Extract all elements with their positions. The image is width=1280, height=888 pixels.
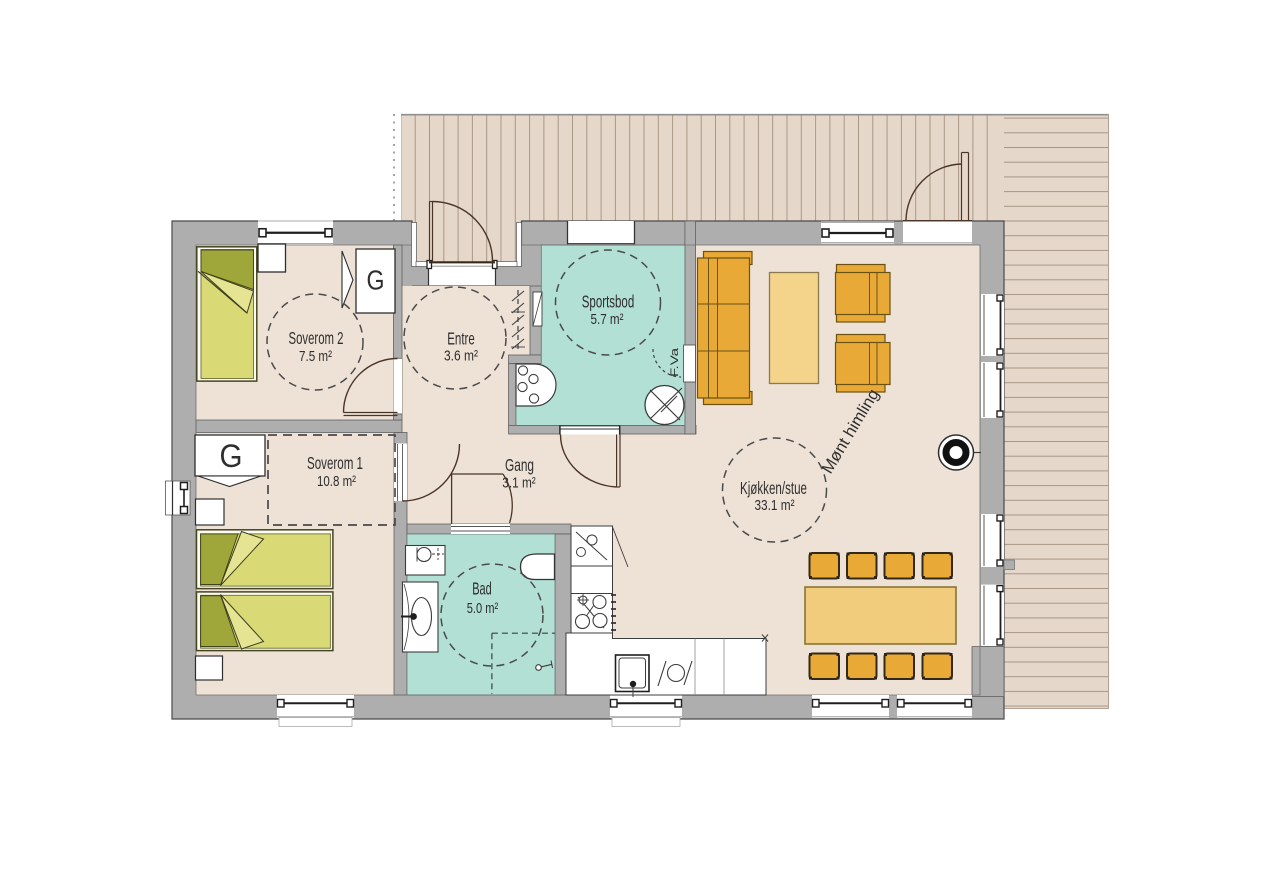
svg-text:5.0 m²: 5.0 m² <box>467 600 499 617</box>
svg-text:Sportsbod: Sportsbod <box>582 292 635 312</box>
svg-text:Soverom 2: Soverom 2 <box>289 328 344 348</box>
svg-text:3.6 m²: 3.6 m² <box>444 348 478 365</box>
svg-text:Soverom 1: Soverom 1 <box>307 453 363 473</box>
svg-text:G: G <box>367 265 385 296</box>
svg-text:33.1 m²: 33.1 m² <box>755 497 795 514</box>
svg-text:5.7 m²: 5.7 m² <box>591 311 624 328</box>
svg-text:7.5 m²: 7.5 m² <box>299 348 332 365</box>
svg-text:Bad: Bad <box>472 579 492 599</box>
svg-text:Gang: Gang <box>505 455 534 475</box>
svg-text:Entre: Entre <box>447 329 475 349</box>
svg-text:G: G <box>220 438 243 474</box>
svg-text:F.Va: F.Va <box>669 347 681 377</box>
svg-text:3.1 m²: 3.1 m² <box>502 475 536 492</box>
svg-text:10.8 m²: 10.8 m² <box>317 473 356 490</box>
svg-text:Kjøkken/stue: Kjøkken/stue <box>740 478 807 498</box>
